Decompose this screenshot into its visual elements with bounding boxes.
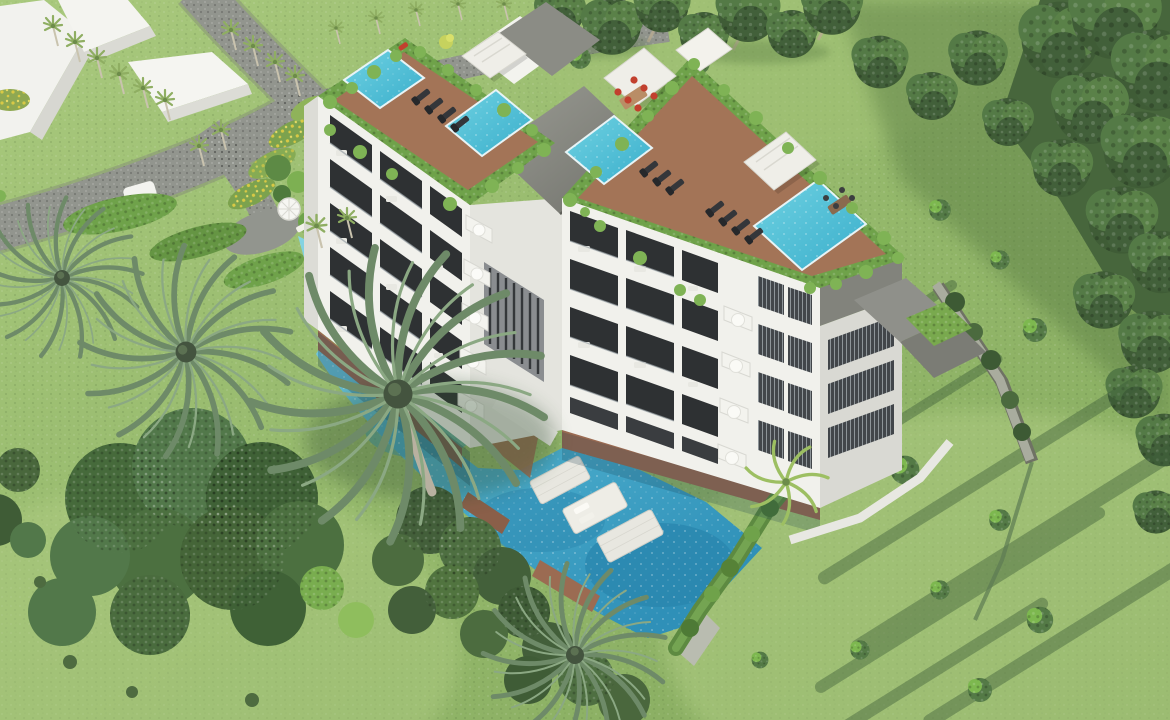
- aerial-render: [0, 0, 1170, 720]
